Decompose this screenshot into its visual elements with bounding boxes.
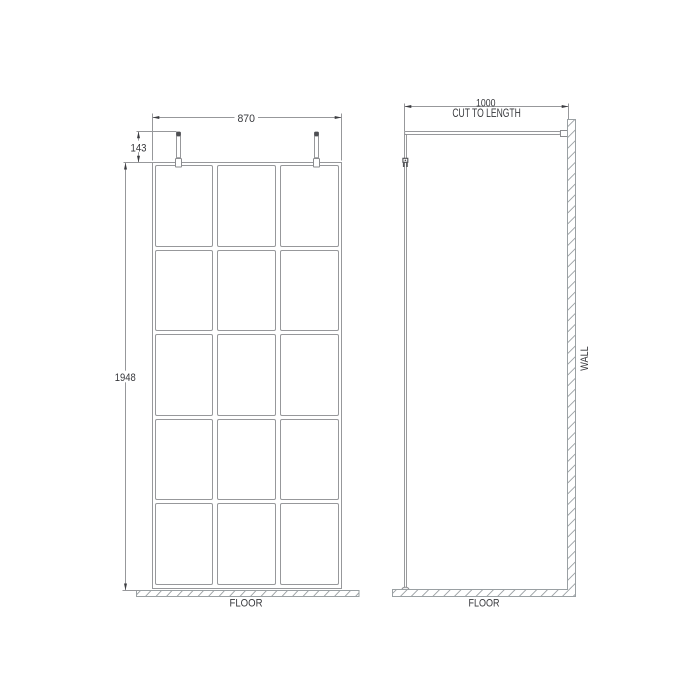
svg-text:FLOOR: FLOOR [230, 598, 263, 610]
svg-text:143: 143 [131, 142, 147, 154]
svg-text:WALL: WALL [579, 346, 591, 371]
svg-text:FLOOR: FLOOR [469, 598, 500, 610]
svg-text:870: 870 [237, 113, 255, 125]
svg-text:CUT TO LENGTH: CUT TO LENGTH [452, 106, 521, 120]
svg-text:1948: 1948 [115, 372, 136, 384]
